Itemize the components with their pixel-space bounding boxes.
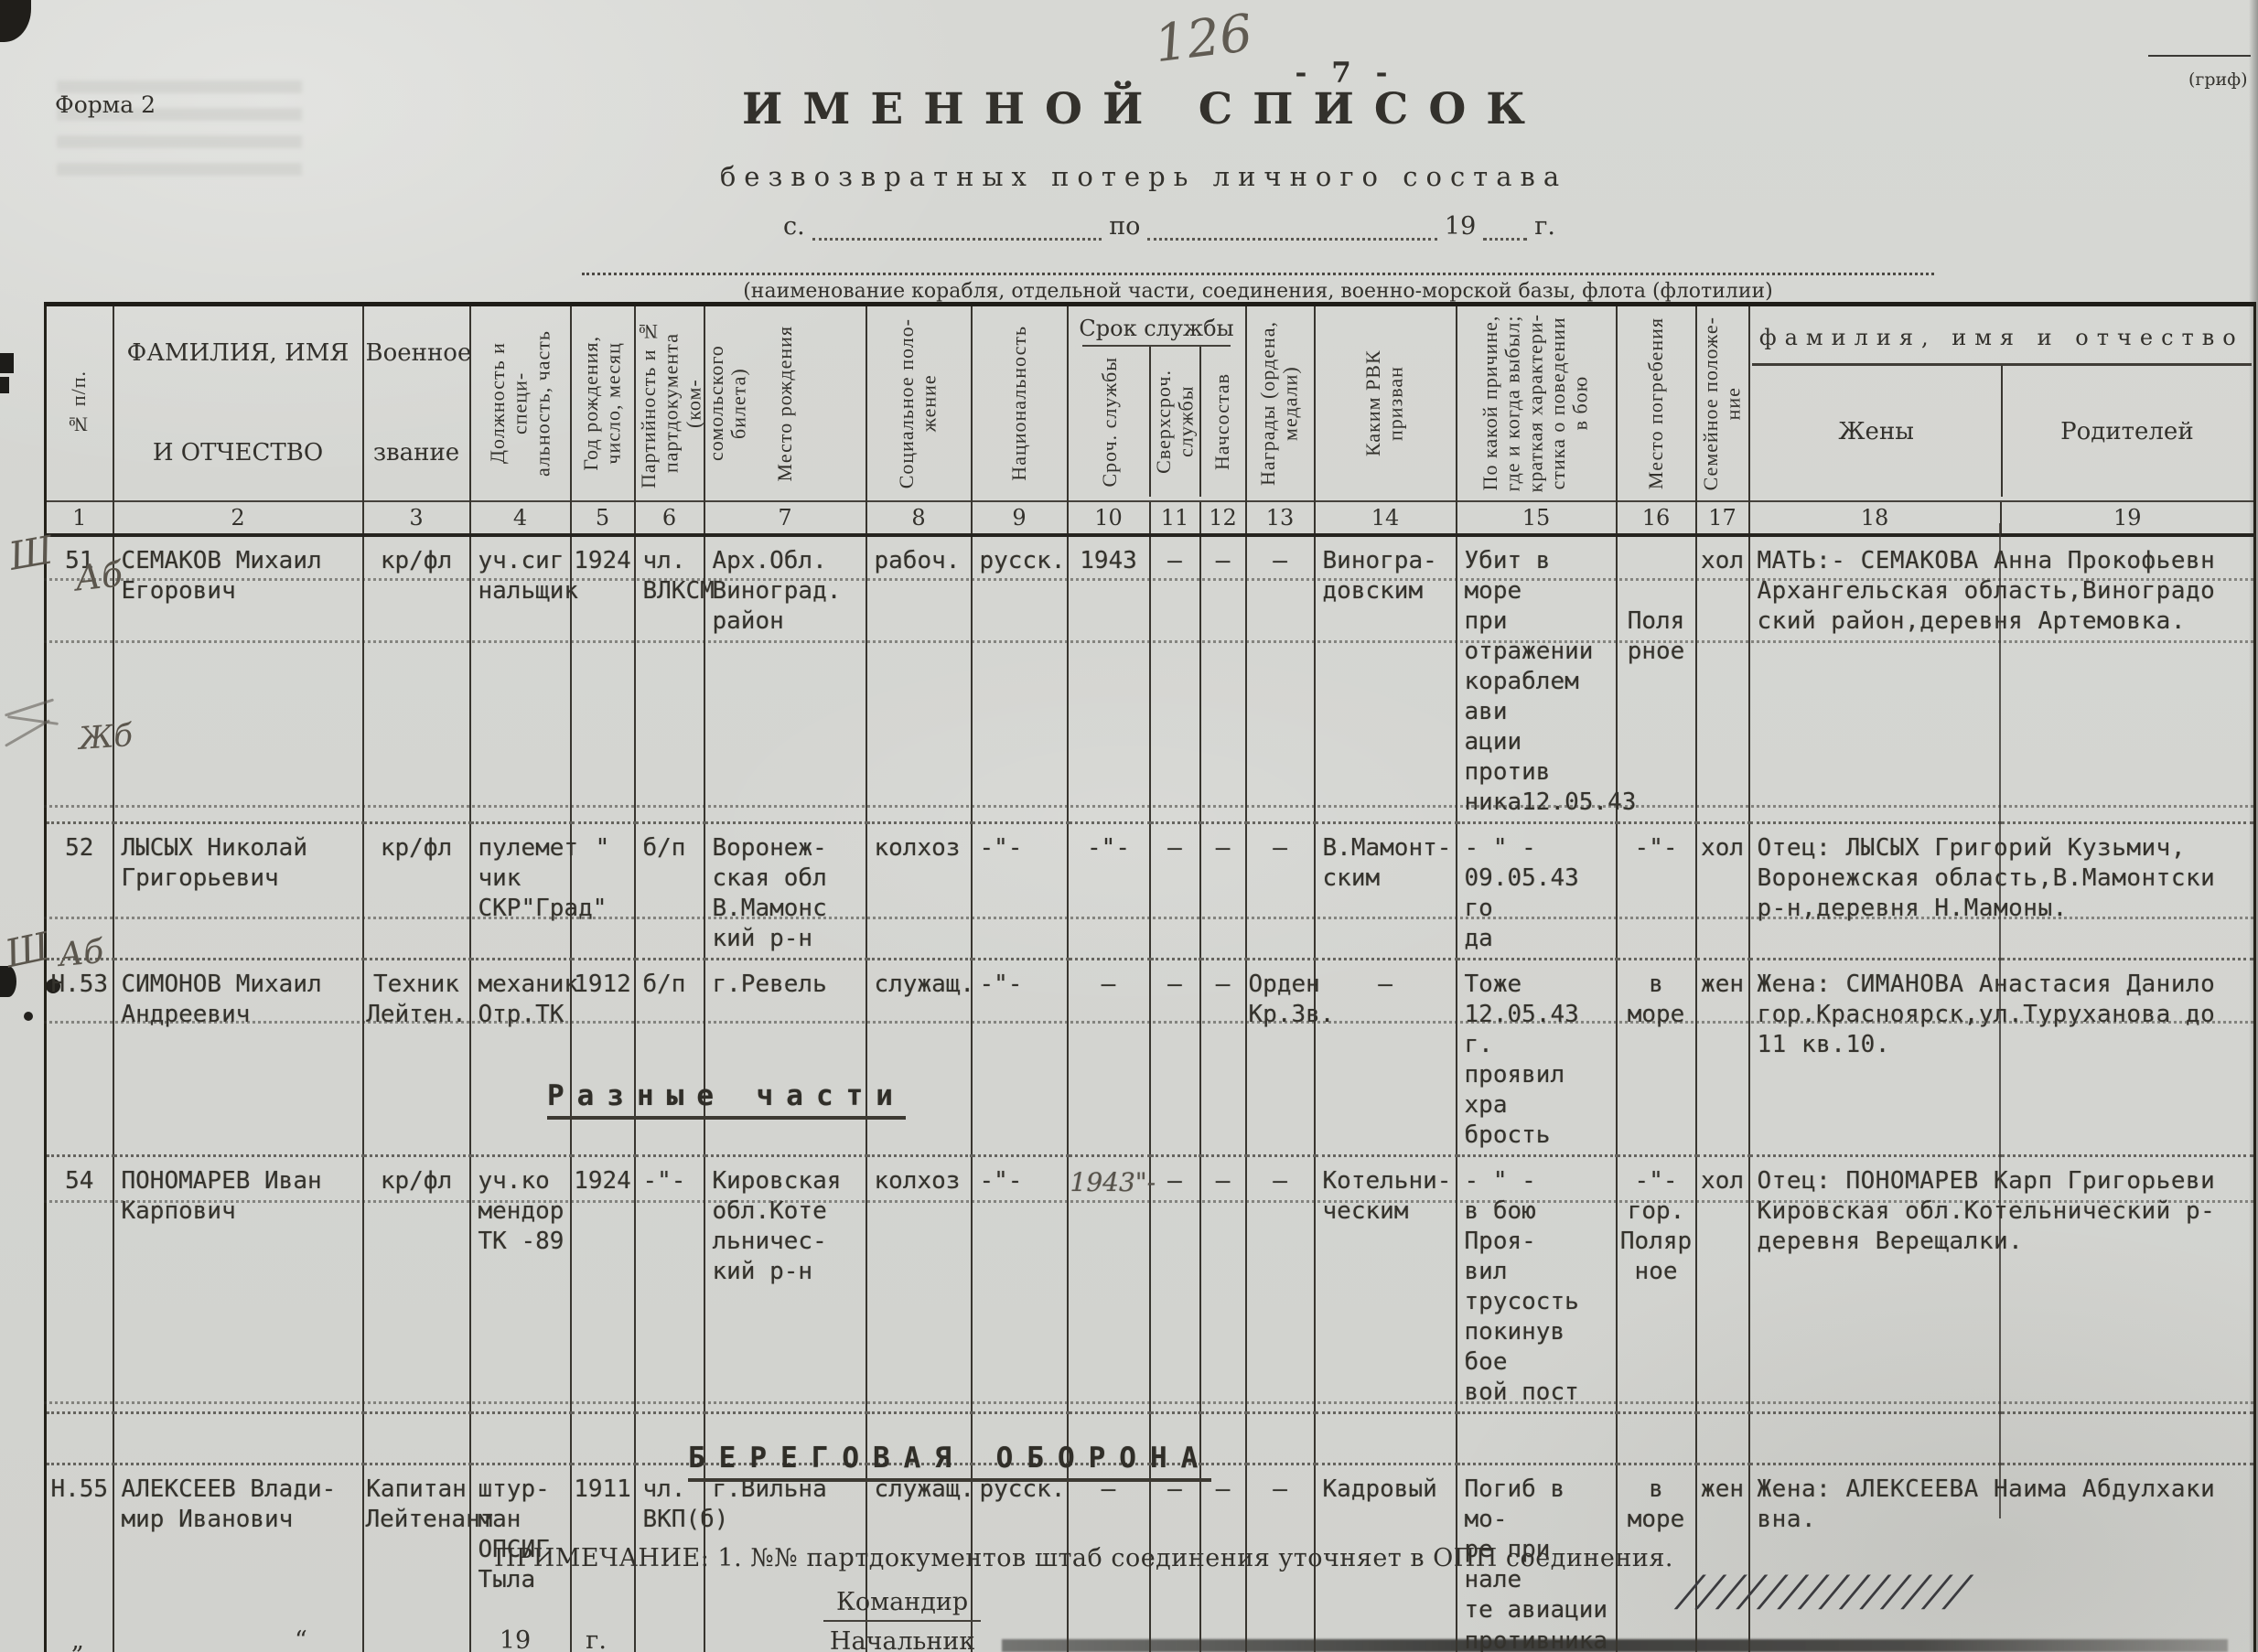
cell-cause: Тоже 12.05.43 г. проявил хра брость: [1457, 960, 1617, 1156]
bottom-year-label: 19: [500, 1626, 531, 1652]
table-row: Н.53 СИМОНОВ Михаил Андреевич Техник Лей…: [46, 960, 2255, 1156]
cell-social: колхоз: [866, 1156, 972, 1413]
col-label: № п/п.: [68, 370, 91, 436]
section-header-various-units: Разные части: [547, 1079, 906, 1120]
col-number: 15: [1457, 501, 1617, 535]
col-header-name: ФАМИЛИЯ, ИМЯ И ОТЧЕСТВО: [113, 305, 363, 502]
col-header-burial: Место погребения: [1617, 305, 1696, 502]
cell-cause: - " - 09.05.43 го да: [1457, 823, 1617, 960]
bottom-date-blank-line: „ “ 19 г.: [71, 1626, 666, 1652]
col-header-rvk: Каким РВК призван: [1315, 305, 1457, 502]
col-number: 5: [571, 501, 635, 535]
edge-ink-mark: [0, 377, 9, 393]
year-suffix: г.: [1527, 212, 1563, 241]
col-label: По какой причине, где и когда выбыл; кра…: [1479, 314, 1592, 492]
blank-line: [84, 1628, 295, 1652]
col-header-nationality: Национальность: [972, 305, 1068, 502]
cell-birth-year: 1924: [571, 1156, 635, 1413]
cell-cause: - " - в бою Проя- вил трусость покинув б…: [1457, 1156, 1617, 1413]
cell-service-extended: –: [1150, 1156, 1200, 1413]
col-label: Место погребения: [1645, 317, 1668, 489]
col-number: 17: [1696, 501, 1749, 535]
col-header-service-term: Сроч. службы: [1070, 347, 1150, 497]
ruling-line: [44, 1021, 2253, 1024]
cell-family-status: хол: [1696, 1156, 1749, 1413]
cell-awards: –: [1246, 823, 1315, 960]
cell-burial: -"- гор. Поляр ное: [1617, 1156, 1696, 1413]
cell-index: Н.55: [46, 1464, 113, 1652]
date-to-blank: [1147, 213, 1436, 241]
table-row: 52 ЛЫСЫХ Николай Григорьевич кр/фл пулем…: [46, 823, 2255, 960]
cell-social: колхоз: [866, 823, 972, 960]
ink-blot: [24, 1012, 33, 1021]
cell-rank: кр/фл: [363, 823, 470, 960]
cell-service-extended: –: [1150, 960, 1200, 1156]
gap: [307, 1630, 500, 1652]
ink-smudge-corner: [0, 0, 31, 42]
cell-party: б/п: [635, 823, 704, 960]
margin-note: Аб: [57, 933, 105, 974]
col-header-awards: Награды (ордена, медали): [1246, 305, 1315, 502]
cell-nationality: -"-: [972, 960, 1068, 1156]
col-number: 7: [704, 501, 866, 535]
cell-service-term: –: [1068, 960, 1150, 1156]
col-label: Национальность: [1008, 326, 1031, 481]
date-from-blank: [812, 213, 1102, 241]
section-header-coastal-defense: БЕРЕГОВАЯ ОБОРОНА: [688, 1442, 1211, 1482]
cell-service-officer: –: [1200, 823, 1246, 960]
col-number: 6: [635, 501, 704, 535]
cell-service-officer: –: [1200, 1156, 1246, 1413]
cell-rvk: Котельни- ческим: [1315, 1156, 1457, 1413]
cell-index: 54: [46, 1156, 113, 1413]
col-header-service-officer: Начсостав: [1199, 347, 1242, 497]
col-header-parents: Родителей: [2001, 366, 2252, 497]
col-label: Каким РВК призван: [1362, 313, 1407, 494]
col-number: 13: [1246, 501, 1315, 535]
year-blank: [1483, 213, 1527, 241]
table-row: 54 ПОНОМАРЕВ Иван Карпович кр/фл уч.ко м…: [46, 1156, 2255, 1413]
cell-nationality: -"-: [972, 823, 1068, 960]
cell-duty: пулемет чик СКР"Град": [470, 823, 571, 960]
col-number: 3: [363, 501, 470, 535]
cell-index: Н.53: [46, 960, 113, 1156]
bottom-year-suffix: г.: [578, 1626, 607, 1652]
col-header-duty: Должность и специ- альность, часть: [470, 305, 571, 502]
col-header-index: № п/п.: [46, 305, 113, 502]
col-header-service-extended: Сверхсроч. службы: [1149, 347, 1199, 497]
cell-birthplace: Кировская обл.Коте льничес- кий р-н: [704, 1156, 866, 1413]
col-number: 19: [2001, 501, 2255, 535]
margin-note: Аб: [73, 553, 124, 598]
cell-nationality: -"-: [972, 1156, 1068, 1413]
col-group-relatives: фамилия, имя и отчество Жены Родителей: [1749, 305, 2255, 502]
unit-name-rule: [582, 273, 1934, 275]
margin-note: Ш: [5, 527, 57, 579]
cell-party: б/п: [635, 960, 704, 1156]
footnote: ПРИМЕЧАНИЕ: 1. №№ партдокументов штаб со…: [494, 1544, 1673, 1572]
col-header-cause: По какой причине, где и когда выбыл; кра…: [1457, 305, 1617, 502]
col-number: 11: [1150, 501, 1200, 535]
col-label: Сроч. службы: [1099, 357, 1122, 488]
col-header-wife: Жены: [1752, 366, 2001, 497]
cell-service-extended: –: [1150, 823, 1200, 960]
column-numbers-row: 1 2 3 4 5 6 7 8 9 10 11 12 13 14 15 16 1…: [46, 501, 2255, 535]
cell-name: АЛЕКСЕЕВ Влади- мир Иванович: [113, 1464, 363, 1652]
cell-name: ЛЫСЫХ Николай Григорьевич: [113, 823, 363, 960]
cell-awards: Орден Кр.Зв.: [1246, 960, 1315, 1156]
cell-relatives: Отец: ЛЫСЫХ Григорий Кузьмич, Воронежска…: [1749, 823, 2255, 960]
col-number: 18: [1749, 501, 2001, 535]
col-label: Социальное поло- жение: [896, 318, 941, 488]
cell-rvk: В.Мамонт- ским: [1315, 823, 1457, 960]
col-label: Семейное положе- ние: [1700, 316, 1745, 490]
edge-ink-mark: [0, 353, 14, 373]
scanned-document-page: Форма 2 (гриф) 126 - 7 - ИМЕННОЙ СПИСОК …: [0, 0, 2258, 1652]
cell-party: -"-: [635, 1156, 704, 1413]
cell-service-term: -"-: [1068, 823, 1150, 960]
signature-block: Командир Начальник: [823, 1588, 981, 1652]
handwritten-hatch-marks: //////////////: [1675, 1566, 1980, 1615]
col-label: Место рождения: [774, 326, 797, 481]
col-number: 16: [1617, 501, 1696, 535]
cell-relatives: Жена: АЛЕКСЕЕВА Наима Абдулхаки вна.: [1749, 1464, 2255, 1652]
date-to-label: по: [1102, 212, 1147, 241]
signature-chief: Начальник: [823, 1622, 981, 1652]
cell-duty: механик Отр.ТК: [470, 960, 571, 1156]
col-number: 1: [46, 501, 113, 535]
date-range-line: с. по 19 г.: [776, 212, 1563, 241]
col-header-birth-year: Год рождения, число, месяц: [571, 305, 635, 502]
open-quote: „: [71, 1626, 84, 1652]
cell-relatives: Жена: СИМАНОВА Анастасия Данило гор.Крас…: [1749, 960, 2255, 1156]
cell-name: СИМОНОВ Михаил Андреевич: [113, 960, 363, 1156]
cell-rank: Капитан Лейтенант: [363, 1464, 470, 1652]
col-header-family: Семейное положе- ние: [1696, 305, 1749, 502]
cell-duty: уч.ко мендор ТК -89: [470, 1156, 571, 1413]
signature-commander: Командир: [823, 1588, 981, 1622]
col-label: Начсостав: [1211, 373, 1234, 470]
cell-social: служащ.: [866, 960, 972, 1156]
col-number: 2: [113, 501, 363, 535]
ruling-line: [44, 917, 2253, 919]
cell-birth-year: ": [571, 823, 635, 960]
cell-relatives: Отец: ПОНОМАРЕВ Карп Григорьеви Кировска…: [1749, 1156, 2255, 1413]
margin-note: Жб: [78, 717, 134, 757]
col-number: 14: [1315, 501, 1457, 535]
col-label: ФАМИЛИЯ, ИМЯ И ОТЧЕСТВО: [116, 328, 360, 478]
col-label: Партийность и № партдокумента (ком- сомо…: [638, 313, 750, 494]
col-number: 12: [1200, 501, 1246, 535]
col-label: Награды (ордена, медали): [1257, 321, 1302, 486]
header-row: № п/п. ФАМИЛИЯ, ИМЯ И ОТЧЕСТВО Военное з…: [46, 305, 2255, 502]
grif-label: (гриф): [2188, 70, 2247, 90]
col-label: Год рождения, число, месяц: [580, 336, 625, 471]
unit-name-caption: (наименование корабля, отдельной части, …: [582, 280, 1934, 303]
col-header-party: Партийность и № партдокумента (ком- сомо…: [635, 305, 704, 502]
cell-family-status: жен: [1696, 960, 1749, 1156]
col-number: 9: [972, 501, 1068, 535]
grif-rule: [2148, 55, 2251, 57]
document-subtitle: безвозвратных потерь личного состава: [640, 161, 1647, 192]
ruling-line: [44, 805, 2253, 808]
cell-burial: в море: [1617, 960, 1696, 1156]
ruling-line: [44, 640, 2253, 643]
cell-birth-year: 1912: [571, 960, 635, 1156]
cell-family-status: хол: [1696, 823, 1749, 960]
cell-birthplace: г.Ревель: [704, 960, 866, 1156]
col-number: 4: [470, 501, 571, 535]
cell-rank: кр/фл: [363, 1156, 470, 1413]
margin-note: Ш: [1, 924, 53, 977]
close-quote: “: [295, 1626, 307, 1652]
date-from-label: с.: [776, 212, 812, 241]
col-number: 10: [1068, 501, 1150, 535]
form-number-label: Форма 2: [55, 91, 156, 118]
cell-birthplace: Воронеж- ская обл В.Мамонс кий р-н: [704, 823, 866, 960]
service-group-label: Срок службы: [1070, 310, 1243, 345]
cell-service-term: 1943"-: [1068, 1156, 1150, 1413]
document-title: ИМЕННОЙ СПИСОК: [677, 84, 1610, 134]
col-label: Должность и специ- альность, часть: [487, 313, 554, 494]
ruling-line: [44, 1401, 2253, 1404]
cell-burial: -"-: [1617, 823, 1696, 960]
cell-awards: –: [1246, 1156, 1315, 1413]
cell-rank: Техник Лейтен.: [363, 960, 470, 1156]
cell-name: ПОНОМАРЕВ Иван Карпович: [113, 1156, 363, 1413]
relatives-group-label: фамилия, имя и отчество: [1752, 310, 2253, 366]
col-number: 8: [866, 501, 972, 535]
cell-family-status: жен: [1696, 1464, 1749, 1652]
col-header-rank: Военное звание: [363, 305, 470, 502]
year-label: 19: [1437, 212, 1483, 241]
ruling-line: [44, 1200, 2253, 1203]
cell-rvk: –: [1315, 960, 1457, 1156]
cell-service-officer: –: [1200, 960, 1246, 1156]
col-label: Сверхсроч. службы: [1153, 370, 1198, 474]
col-label: Военное звание: [366, 328, 468, 478]
col-header-social: Социальное поло- жение: [866, 305, 972, 502]
blank-line: [531, 1628, 578, 1652]
col-group-service: Срок службы Сроч. службы Сверхсроч. служ…: [1068, 305, 1246, 502]
ruling-line: [44, 578, 2253, 581]
